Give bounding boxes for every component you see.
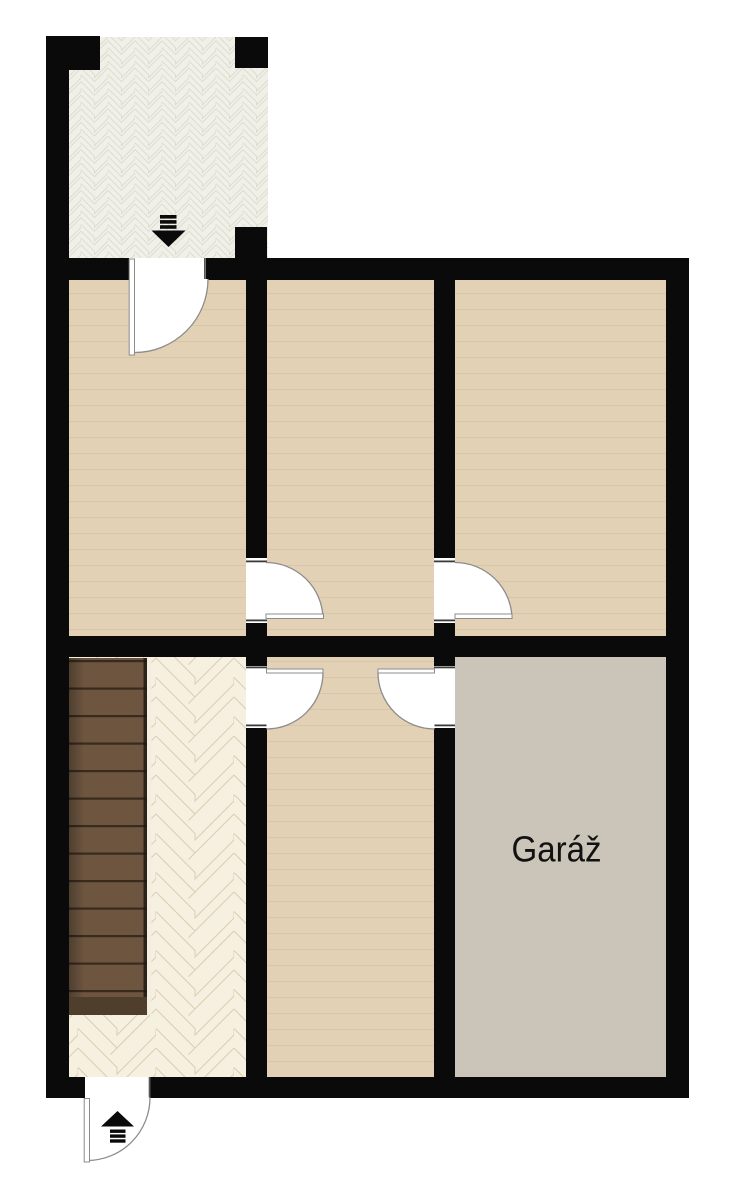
svg-text:Garáž: Garáž [512, 829, 602, 870]
